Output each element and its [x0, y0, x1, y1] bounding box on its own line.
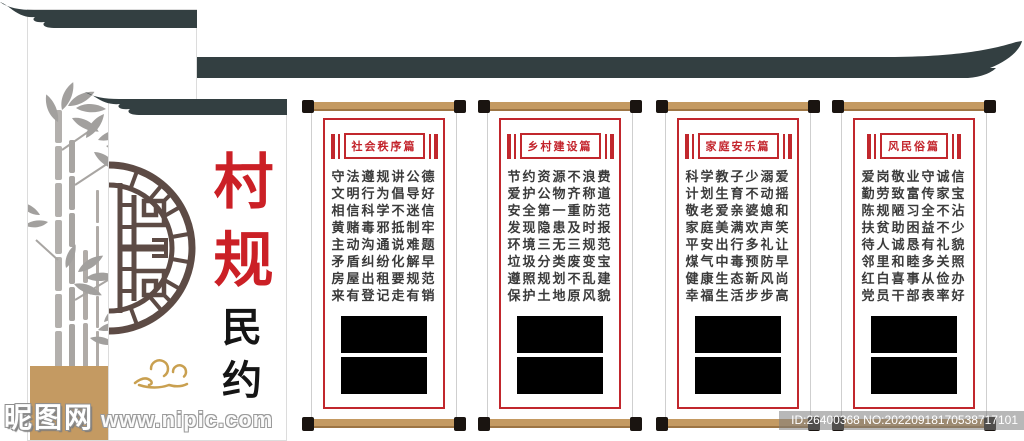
- verse-line: 保护土地原风貌: [507, 287, 612, 304]
- banner-bracket-icon: [605, 134, 614, 159]
- verse-line: 健康生态新风尚: [685, 270, 790, 287]
- verse-line: 来有登记走有销: [331, 287, 436, 304]
- scroll-banner: 家庭安乐篇: [685, 133, 792, 159]
- verse-line: 计划生育不动摇: [685, 185, 790, 202]
- roller-cap: [984, 100, 996, 113]
- verse-line: 红白喜事从俭办: [861, 270, 966, 287]
- roller-cap: [656, 100, 668, 113]
- roller-cap: [630, 100, 642, 113]
- verse-line: 矛盾纠纷化解早: [331, 253, 436, 270]
- verse-line: 敬老爱亲婆媳和: [685, 202, 790, 219]
- verse-line: 幸福生活步步高: [685, 287, 790, 304]
- roller-cap: [454, 100, 466, 113]
- verse-line: 黄赌毒邪抵制牢: [331, 219, 436, 236]
- site-logo: 昵图网: [4, 396, 94, 436]
- scroll-banner: 风民俗篇: [867, 133, 961, 159]
- verse-list: 爱岗敬业守诚信 勤劳致富传家宝 陈规陋习全不沾 扶贫助困益不少 待人诚恳有礼貌 …: [861, 168, 966, 304]
- scroll-title: 风民俗篇: [880, 133, 948, 159]
- verse-line: 垃圾分类废变宝: [507, 253, 612, 270]
- roller-cap: [454, 417, 466, 431]
- banner-bracket-icon: [429, 134, 438, 159]
- verse-line: 主动沟通说难题: [331, 236, 436, 253]
- verse-line: 科学教子少溺爱: [685, 168, 790, 185]
- banner-bracket-icon: [507, 134, 516, 159]
- verse-line: 节约资源不浪费: [507, 168, 612, 185]
- roller-cap: [808, 100, 820, 113]
- scroll-title: 乡村建设篇: [520, 133, 601, 159]
- scroll-title: 社会秩序篇: [344, 133, 425, 159]
- banner-bracket-icon: [867, 134, 876, 159]
- photo-placeholder: [517, 357, 603, 394]
- verse-line: 文明行为倡导好: [331, 185, 436, 202]
- verse-line: 环境三无三规范: [507, 236, 612, 253]
- photo-placeholder: [871, 357, 957, 394]
- roller-cap: [302, 100, 314, 113]
- photo-placeholder: [341, 357, 427, 394]
- verse-line: 平安出行多礼让: [685, 236, 790, 253]
- banner-bracket-icon: [783, 134, 792, 159]
- scroll-body: 乡村建设篇 节约资源不浪费 爱护公物齐称道 安全第一重防范 发现隐患及时报 环境…: [487, 106, 633, 418]
- photo-placeholder: [695, 316, 781, 353]
- main-title: 村规: [203, 150, 273, 306]
- scroll-village-construction: 乡村建设篇 节约资源不浪费 爱护公物齐称道 安全第一重防范 发现隐患及时报 环境…: [478, 100, 642, 431]
- roller-cap: [656, 417, 668, 431]
- roller-cap: [302, 417, 314, 431]
- roller-cap: [832, 100, 844, 113]
- roller-cap: [478, 100, 490, 113]
- verse-line: 爱岗敬业守诚信: [861, 168, 966, 185]
- scroll-roller-top: [832, 100, 996, 113]
- cloud-icon: [131, 349, 203, 389]
- verse-list: 节约资源不浪费 爱护公物齐称道 安全第一重防范 发现隐患及时报 环境三无三规范 …: [507, 168, 612, 304]
- verse-line: 安全第一重防范: [507, 202, 612, 219]
- scroll-title: 家庭安乐篇: [698, 133, 779, 159]
- verse-line: 家庭美满欢声笑: [685, 219, 790, 236]
- scroll-family-harmony: 家庭安乐篇 科学教子少溺爱 计划生育不动摇 敬老爱亲婆媳和 家庭美满欢声笑 平安…: [656, 100, 820, 431]
- scroll-social-order: 社会秩序篇 守法遵规讲公德 文明行为倡导好 相信科学不迷信 黄赌毒邪抵制牢 主动…: [302, 100, 466, 431]
- banner-bracket-icon: [952, 134, 961, 159]
- site-url: www.nipic.com: [101, 407, 273, 433]
- verse-line: 扶贫助困益不少: [861, 219, 966, 236]
- scroll-body: 社会秩序篇 守法遵规讲公德 文明行为倡导好 相信科学不迷信 黄赌毒邪抵制牢 主动…: [311, 106, 457, 418]
- roller-cap: [630, 417, 642, 431]
- scroll-roller-bottom: [302, 417, 466, 431]
- scroll-folk-customs: 风民俗篇 爱岗敬业守诚信 勤劳致富传家宝 陈规陋习全不沾 扶贫助困益不少 待人诚…: [832, 100, 996, 431]
- banner-bracket-icon: [685, 134, 694, 159]
- verse-line: 相信科学不迷信: [331, 202, 436, 219]
- scroll-frame: 社会秩序篇 守法遵规讲公德 文明行为倡导好 相信科学不迷信 黄赌毒邪抵制牢 主动…: [323, 118, 445, 409]
- verse-line: 陈规陋习全不沾: [861, 202, 966, 219]
- roller-cap: [478, 417, 490, 431]
- verse-line: 遵照规划不乱建: [507, 270, 612, 287]
- verse-line: 煤气中毒预防早: [685, 253, 790, 270]
- scroll-frame: 家庭安乐篇 科学教子少溺爱 计划生育不动摇 敬老爱亲婆媳和 家庭美满欢声笑 平安…: [677, 118, 799, 409]
- banner-bracket-icon: [331, 134, 340, 159]
- verse-line: 房屋出租要规范: [331, 270, 436, 287]
- verse-line: 待人诚恳有礼貌: [861, 236, 966, 253]
- scroll-roller-top: [656, 100, 820, 113]
- scroll-body: 家庭安乐篇 科学教子少溺爱 计划生育不动摇 敬老爱亲婆媳和 家庭美满欢声笑 平安…: [665, 106, 811, 418]
- verse-line: 守法遵规讲公德: [331, 168, 436, 185]
- scroll-frame: 乡村建设篇 节约资源不浪费 爱护公物齐称道 安全第一重防范 发现隐患及时报 环境…: [499, 118, 621, 409]
- scroll-roller-top: [302, 100, 466, 113]
- photo-placeholder: [871, 316, 957, 353]
- scroll-body: 风民俗篇 爱岗敬业守诚信 勤劳致富传家宝 陈规陋习全不沾 扶贫助困益不少 待人诚…: [841, 106, 987, 418]
- site-watermark: 昵图网 www.nipic.com: [4, 396, 273, 436]
- title-panel-roof: [85, 92, 287, 116]
- verse-line: 爱护公物齐称道: [507, 185, 612, 202]
- photo-placeholder: [517, 316, 603, 353]
- left-panel-roof: [0, 2, 197, 29]
- photo-placeholder: [341, 316, 427, 353]
- verse-list: 科学教子少溺爱 计划生育不动摇 敬老爱亲婆媳和 家庭美满欢声笑 平安出行多礼让 …: [685, 168, 790, 304]
- culture-wall-design: 村规 民约 社会秩序篇 守法遵规讲公德 文明行为倡导好 相信科学不迷信: [0, 0, 1024, 441]
- scroll-banner: 乡村建设篇: [507, 133, 614, 159]
- scroll-roller-top: [478, 100, 642, 113]
- verse-list: 守法遵规讲公德 文明行为倡导好 相信科学不迷信 黄赌毒邪抵制牢 主动沟通说难题 …: [331, 168, 436, 304]
- verse-line: 勤劳致富传家宝: [861, 185, 966, 202]
- scroll-frame: 风民俗篇 爱岗敬业守诚信 勤劳致富传家宝 陈规陋习全不沾 扶贫助困益不少 待人诚…: [853, 118, 975, 409]
- roof-beam: [196, 40, 1024, 79]
- lattice-window-icon: [108, 161, 196, 335]
- scroll-roller-bottom: [478, 417, 642, 431]
- verse-line: 党员干部表率好: [861, 287, 966, 304]
- verse-line: 邻里和睦多关照: [861, 253, 966, 270]
- scroll-banner: 社会秩序篇: [331, 133, 438, 159]
- verse-line: 发现隐患及时报: [507, 219, 612, 236]
- id-watermark: ID:26400368 NO:20220918170538717101: [779, 411, 1024, 430]
- photo-placeholder: [695, 357, 781, 394]
